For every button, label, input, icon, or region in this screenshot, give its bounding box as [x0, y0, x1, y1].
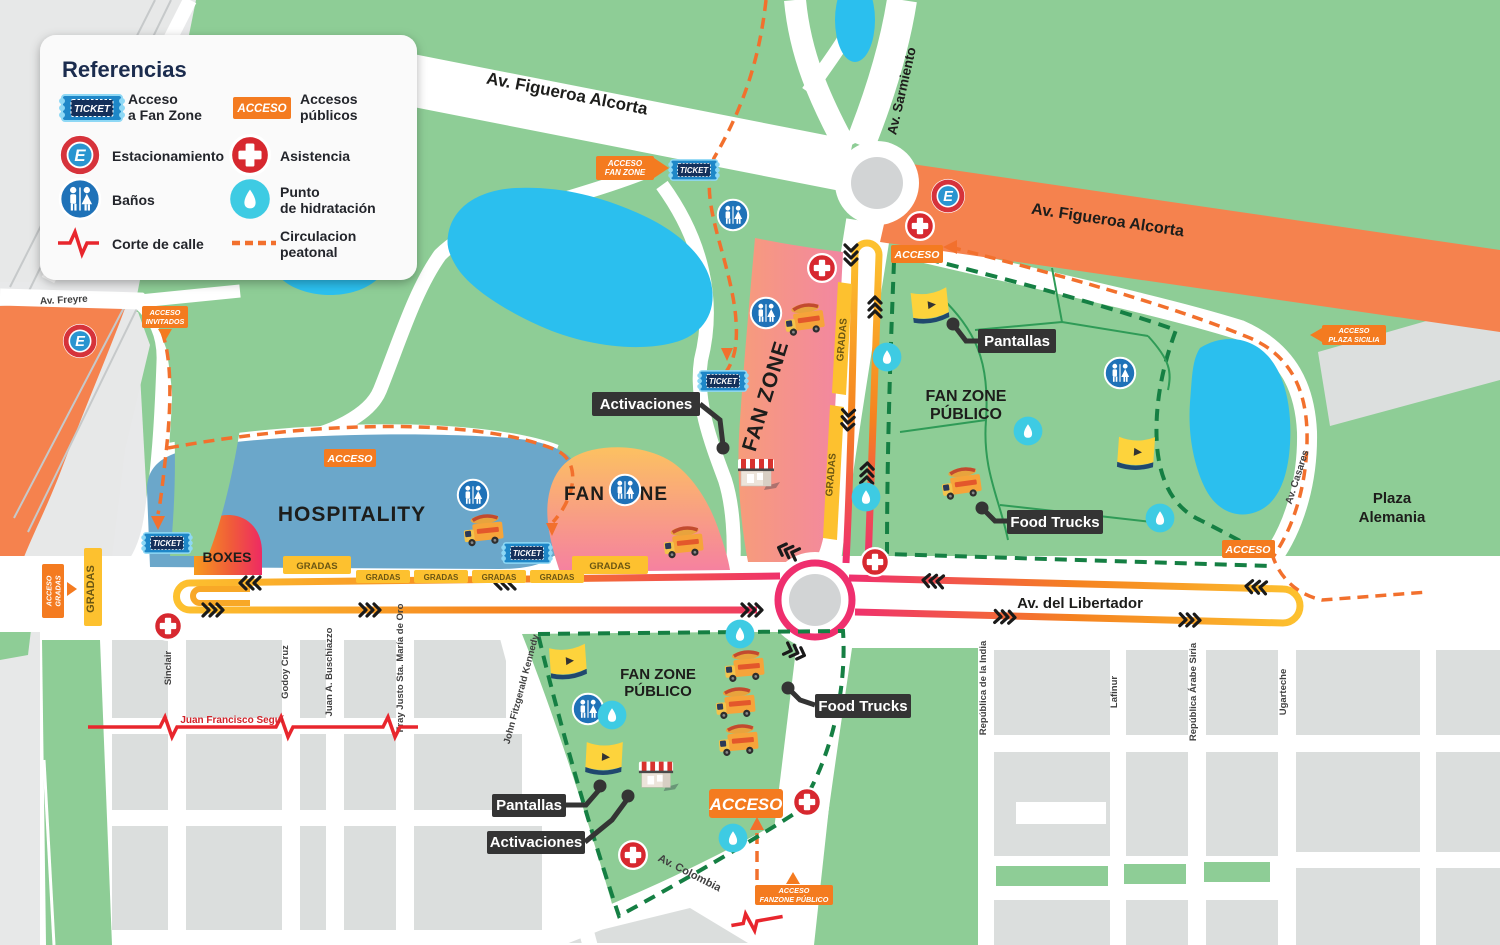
acceso-badge-large: ACCESO [709, 789, 783, 818]
hydration-legend-icon [230, 179, 270, 219]
svg-text:Food Trucks: Food Trucks [1010, 514, 1099, 531]
svg-text:FAN ZONE: FAN ZONE [605, 168, 646, 177]
legend-pedestrian-1: Circulacion [280, 228, 356, 244]
street-label-lafinur: Lafinur [1109, 676, 1120, 708]
svg-text:Activaciones: Activaciones [600, 396, 693, 413]
svg-text:ACCESO: ACCESO [327, 453, 373, 465]
restrooms-icon [1105, 358, 1135, 388]
hydration-icon [719, 824, 748, 853]
legend-parking: Estacionamiento [112, 148, 224, 164]
restrooms-icon [751, 298, 781, 328]
zone-label-fzp-south-1: FAN ZONE [620, 666, 696, 683]
legend-fanzone-access-1: Acceso [128, 91, 178, 107]
ticket-legend-icon [59, 95, 125, 121]
svg-text:ACCESO: ACCESO [1338, 326, 1370, 335]
street-label-godoy-cruz: Godoy Cruz [280, 645, 291, 699]
parking-legend-icon [60, 135, 100, 175]
hydration-icon [852, 483, 881, 512]
legend: Referencias Acceso a Fan Zone ACCESO Acc… [40, 35, 417, 280]
zone-label-plaza-2: Alemania [1359, 509, 1426, 526]
restrooms-icon [458, 480, 488, 510]
legend-restrooms: Baños [112, 192, 155, 208]
legend-assistance: Asistencia [280, 148, 350, 164]
assistance-icon [906, 212, 934, 240]
street-label-sinclair: Sinclair [163, 651, 174, 686]
svg-text:Pantallas: Pantallas [984, 333, 1050, 350]
zone-label-fzp-south-2: PÚBLICO [624, 682, 692, 700]
svg-text:ACCESO: ACCESO [778, 886, 810, 895]
street-label-segui: Juan Francisco Seguí [180, 715, 285, 726]
street-label-libertador: Av. del Libertador [1017, 595, 1143, 612]
svg-text:GRADAS: GRADAS [424, 573, 459, 582]
zone-label-plaza-1: Plaza [1373, 490, 1412, 507]
svg-text:FANZONE PÚBLICO: FANZONE PÚBLICO [760, 895, 829, 904]
street-label-arabe-siria: República Árabe Siria [1188, 642, 1199, 741]
zone-label-fzp-right-2: PÚBLICO [930, 404, 1002, 423]
svg-text:GRADAS: GRADAS [54, 575, 63, 606]
hydration-icon [1146, 504, 1175, 533]
svg-text:Activaciones: Activaciones [490, 834, 583, 851]
svg-text:ACCESO: ACCESO [149, 308, 181, 317]
ticket-access-icon [697, 371, 748, 391]
event-map: TICKET E [0, 0, 1500, 945]
legend-hydration-2: de hid​ratación [280, 200, 376, 216]
ticket-access-icon [141, 533, 192, 553]
hydration-icon [598, 701, 627, 730]
assistance-icon [793, 788, 821, 816]
acceso-badge: ACCESO [891, 245, 943, 263]
hydration-icon [726, 620, 755, 649]
street-label-fray-justo: Fray Justo Sta. María de Oro [395, 603, 406, 732]
svg-text:GRADAS: GRADAS [540, 573, 575, 582]
ticket-access-icon [668, 160, 719, 180]
zone-label-hospitality: HOSPITALITY [278, 503, 426, 526]
svg-text:GRADAS: GRADAS [296, 561, 337, 572]
legend-road-closure: Corte de calle [112, 236, 204, 252]
street-label-buschiazzo: Juan A. Buschiazzo [324, 627, 335, 716]
svg-text:GRADAS: GRADAS [482, 573, 517, 582]
legend-hydration-1: Punto [280, 184, 320, 200]
svg-text:ACCESO: ACCESO [709, 795, 783, 814]
restrooms-legend-icon [60, 179, 100, 219]
hydration-icon [873, 343, 902, 372]
parking-icon [63, 324, 97, 358]
restrooms-icon [610, 475, 640, 505]
svg-text:ACCESO: ACCESO [894, 249, 940, 261]
svg-text:ACCESO: ACCESO [607, 159, 643, 168]
assistance-legend-icon [231, 136, 270, 175]
svg-text:Pantallas: Pantallas [496, 797, 562, 814]
zone-label-fzp-right-1: FAN ZONE [926, 388, 1007, 405]
zone-label-boxes: BOXES [202, 549, 251, 565]
parking-icon [931, 179, 965, 213]
svg-text:ACCESO: ACCESO [45, 575, 54, 607]
assistance-icon [861, 548, 889, 576]
street-label-ugarteche: Ugarteche [1278, 669, 1289, 715]
acceso-badge: ACCESO [324, 449, 376, 467]
assistance-icon [808, 254, 836, 282]
legend-public-access-2: públicos [300, 107, 358, 123]
restrooms-icon [718, 200, 748, 230]
svg-text:ACCESO: ACCESO [1225, 544, 1271, 556]
svg-text:GRADAS: GRADAS [366, 573, 401, 582]
legend-fanzone-access-2: a Fan Zone [128, 107, 202, 123]
legend-public-access-1: Accesos [300, 91, 358, 107]
acceso-badge: ACCESO [1222, 540, 1275, 558]
svg-text:Food Trucks: Food Trucks [818, 698, 907, 715]
svg-text:ACCESO: ACCESO [236, 103, 286, 115]
svg-text:PLAZA SICILIA: PLAZA SICILIA [1328, 335, 1379, 344]
svg-text:INVITADOS: INVITADOS [146, 317, 185, 326]
svg-text:GRADAS: GRADAS [589, 561, 630, 572]
legend-title: Referencias [62, 57, 187, 82]
svg-text:GRADAS: GRADAS [85, 565, 97, 613]
ticket-access-icon [501, 543, 552, 563]
street-label-india: República de la India [978, 640, 989, 735]
hydration-icon [1014, 417, 1043, 446]
assistance-icon [619, 841, 647, 869]
legend-pedestrian-2: peatonal [280, 244, 338, 260]
assistance-icon [154, 612, 182, 640]
